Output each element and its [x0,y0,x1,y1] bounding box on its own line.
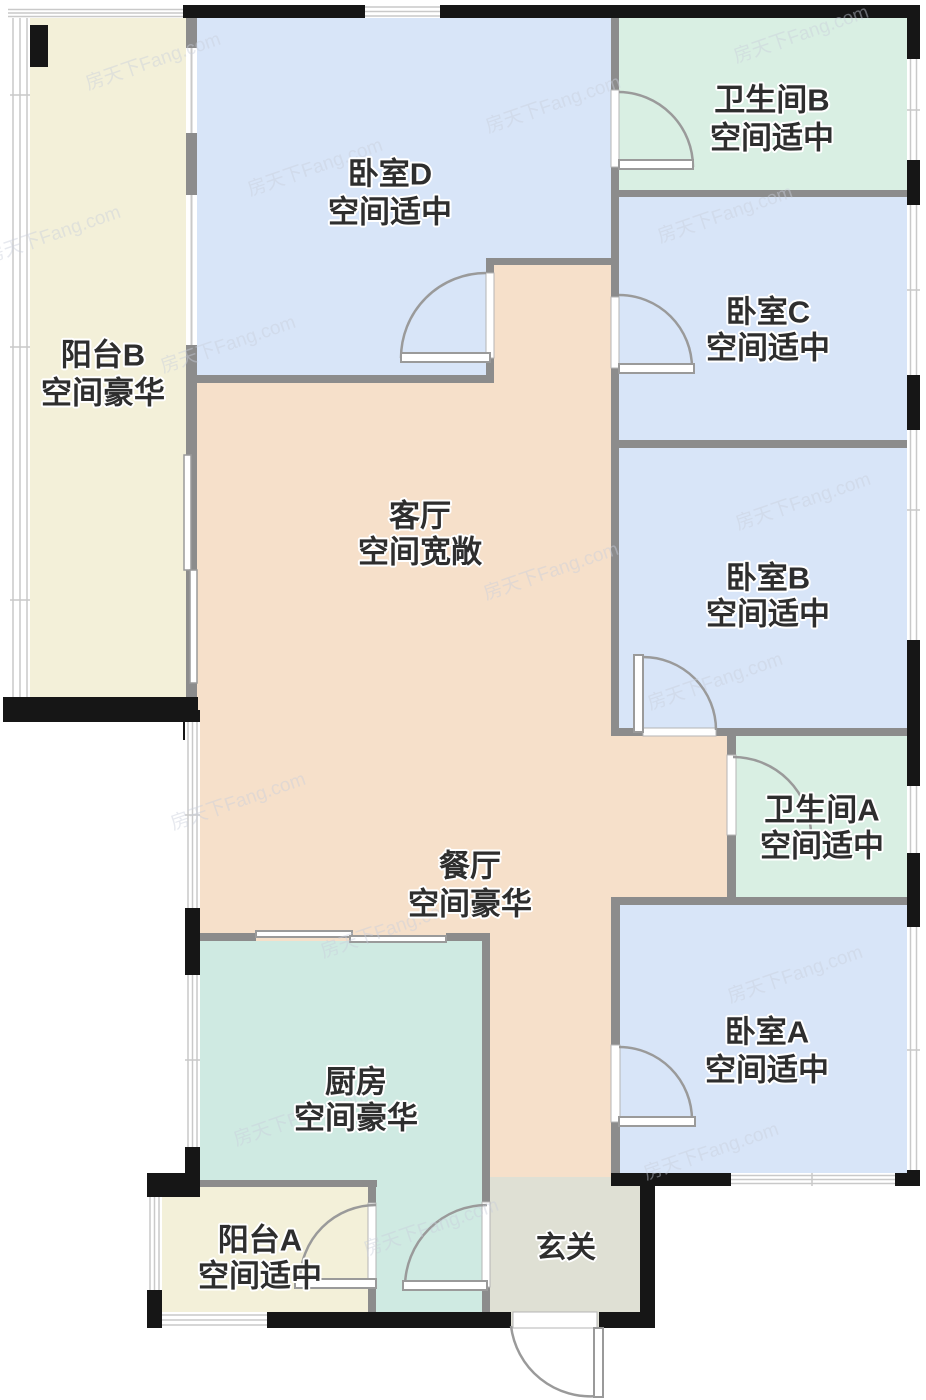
wall-bedroomB-west [611,448,619,730]
door-leaf-bedroomB [634,655,643,732]
wall-kitchen-east-upper [482,941,490,1202]
balconyB-slider-panel-2 [190,570,197,683]
wall-bathA-west-lower [727,835,736,905]
wall-right-seg-3 [907,375,920,430]
wall-kitchen-north-left [197,933,256,941]
hallway-corridor-floor [486,258,619,383]
room-name: 卧室C [726,295,810,330]
floor-plan-page: 房天下Fang.com 房天下Fang.com 房天下Fang.com 房天下F… [0,0,926,1400]
room-grade: 空间豪华 [41,376,165,411]
room-grade: 空间豪华 [294,1101,418,1136]
wall-top-left-seg [183,5,365,18]
wall-balconyA-east-upper [368,1187,376,1203]
wall-right-seg-1 [907,5,920,59]
room-name: 卧室B [726,561,810,596]
room-grade: 空间宽敞 [358,535,483,570]
wall-right-seg-2 [907,160,920,205]
room-grade: 空间适中 [705,1053,829,1088]
room-dining-strip-floor [485,933,619,1180]
door-arc-entry [511,1326,598,1396]
room-grade: 空间适中 [706,331,830,366]
wall-corridor-north [486,258,619,265]
wall-bedroomA-se-block [895,1173,920,1186]
room-name: 卫生间B [714,83,829,118]
wall-left-block-1 [185,908,200,975]
room-name: 阳台B [61,338,145,373]
wall-bedroomD-living [197,375,493,383]
room-name: 玄关 [536,1231,596,1265]
room-grade: 空间适中 [760,829,884,864]
wall-bathA-bedroomA [611,897,920,905]
room-name: 厨房 [325,1065,387,1100]
wall-bedroomA-west-upper [611,905,620,1045]
door-leaf-bedroomD [401,353,490,362]
door-gap-entry [513,1312,597,1328]
wall-foyer-east [640,1180,655,1328]
wall-bedroomC-bedroomB [611,440,920,448]
door-gap-bedroomB [643,728,716,736]
room-name: 阳台A [218,1223,302,1258]
wall-bottom-kitchen-seg [267,1312,511,1328]
wall-right-seg-4 [907,640,920,786]
door-gap-bedroomC [611,297,619,368]
room-grade: 空间适中 [710,121,834,156]
door-leaf-bedroomA [619,1117,695,1126]
wall-bedroomC-west-upper [611,197,619,297]
room-name: 餐厅 [439,849,501,884]
door-leaf-bedroomC [619,364,694,373]
room-name: 卧室A [725,1015,809,1050]
wall-bedroomC-west-lower [611,368,619,448]
wall-kitchen-north-right [446,933,490,941]
wall-balconyB-south [3,697,198,722]
wall-right-seg-5 [907,853,920,927]
door-gap-bedroomD [486,273,494,358]
wall-balconyA-sw-block [147,1290,162,1328]
room-name: 客厅 [389,499,451,534]
bath-a-passage-floor [611,728,736,905]
floor-plan: 房天下Fang.com 房天下Fang.com 房天下Fang.com 房天下F… [0,0,926,1400]
wall-bathA-west-upper [727,736,736,755]
balconyB-slider-panel-1 [184,455,191,570]
door-gap-bedroomA [611,1045,620,1122]
room-grade: 空间豪华 [408,887,532,922]
label-foyer: 玄关 [536,1231,596,1265]
wall-bedroomB-south-right [716,728,920,736]
door-leaf-entry [594,1328,603,1397]
window-bedroomA-east [907,927,920,1170]
door-gap-bathA [727,755,736,835]
room-grade: 空间适中 [706,597,830,632]
room-name: 卧室D [348,157,432,192]
door-leaf-bathB [619,160,693,169]
room-living-floor [197,383,619,941]
room-grade: 空间适中 [328,195,452,230]
room-grade: 空间适中 [198,1259,322,1294]
window-bedroomB-east [907,430,920,640]
door-leaf-kitchen-foyer [403,1281,487,1290]
label-bath-a: 卫生间A 空间适中 [760,793,884,864]
window-bathA-east [907,786,920,853]
wall-balconyA-nw-block [147,1173,200,1197]
door-gap-bathB [611,90,619,167]
wall-bedroomA-west-lower [611,1122,620,1180]
room-name: 卫生间A [764,793,879,828]
